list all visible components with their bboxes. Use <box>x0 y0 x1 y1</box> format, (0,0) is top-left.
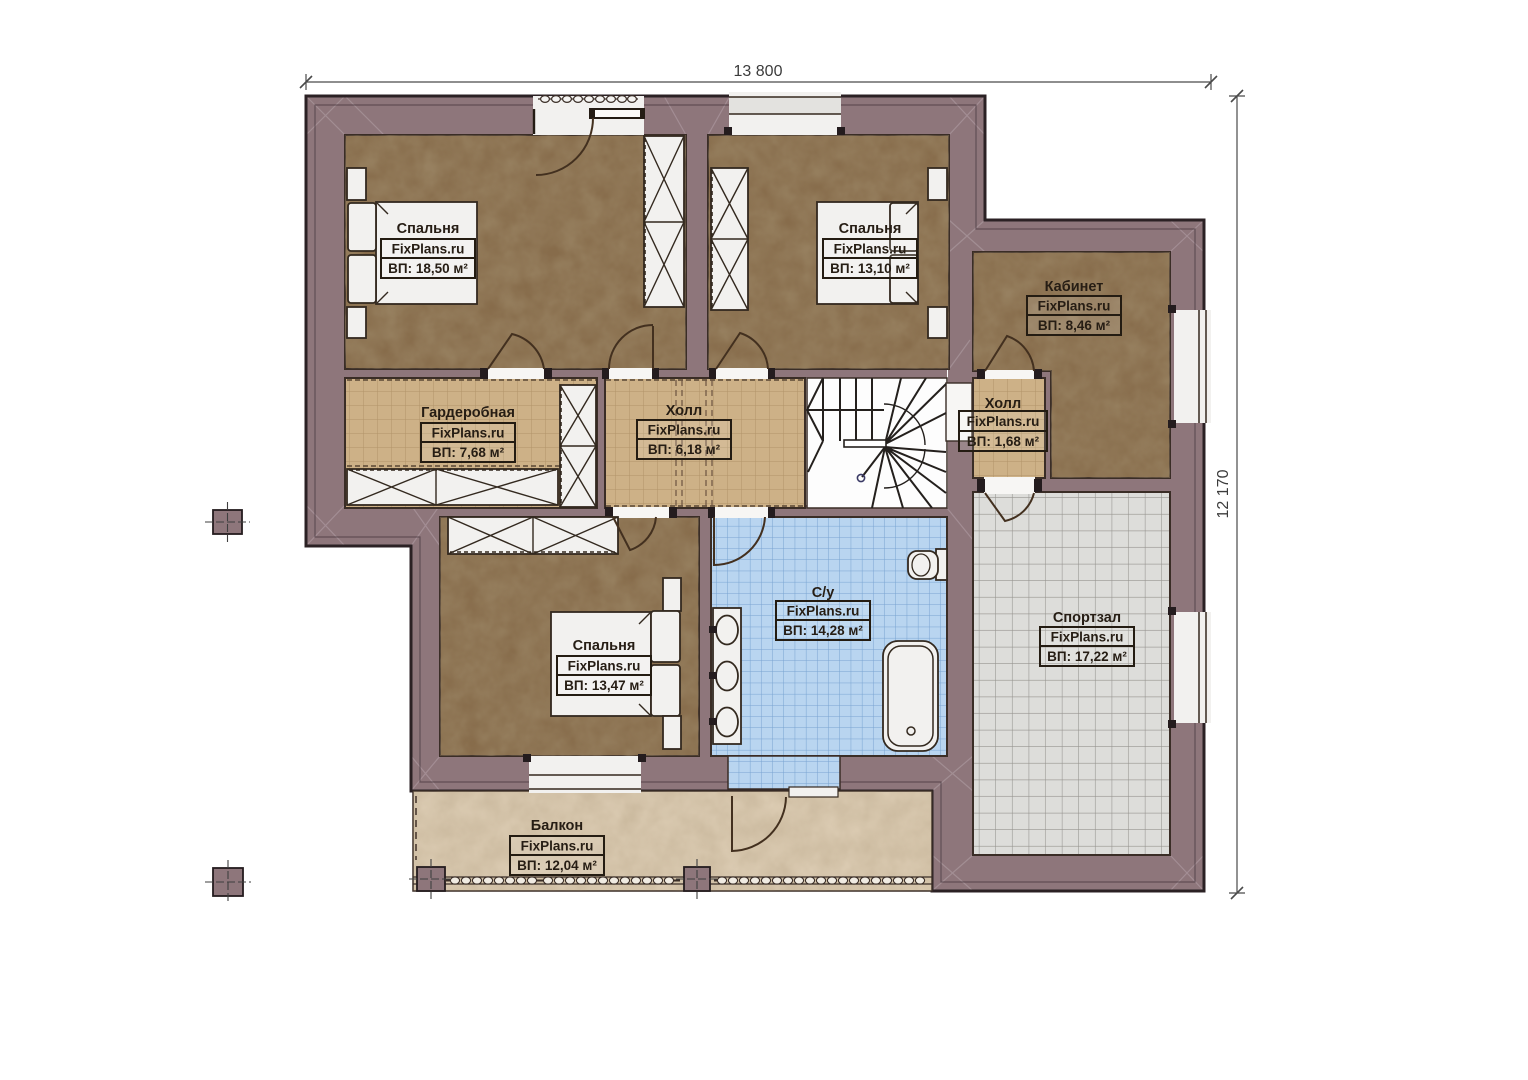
svg-text:13 800: 13 800 <box>734 63 783 80</box>
svg-text:FixPlans.ru: FixPlans.ru <box>648 423 721 438</box>
svg-text:FixPlans.ru: FixPlans.ru <box>521 839 594 854</box>
svg-text:FixPlans.ru: FixPlans.ru <box>834 242 907 257</box>
svg-text:FixPlans.ru: FixPlans.ru <box>1051 630 1124 645</box>
svg-text:ВП: 7,68 м²: ВП: 7,68 м² <box>432 445 505 460</box>
svg-text:FixPlans.ru: FixPlans.ru <box>568 659 641 674</box>
svg-text:Спальня: Спальня <box>839 221 902 237</box>
svg-text:ВП: 12,04 м²: ВП: 12,04 м² <box>517 858 597 873</box>
svg-text:ВП: 18,50 м²: ВП: 18,50 м² <box>388 261 468 276</box>
svg-text:ВП: 8,46 м²: ВП: 8,46 м² <box>1038 318 1111 333</box>
svg-text:FixPlans.ru: FixPlans.ru <box>392 242 465 257</box>
svg-text:С/у: С/у <box>812 585 835 601</box>
svg-text:FixPlans.ru: FixPlans.ru <box>967 414 1040 429</box>
svg-text:ВП: 6,18 м²: ВП: 6,18 м² <box>648 442 721 457</box>
svg-text:ВП: 13,10 м²: ВП: 13,10 м² <box>830 261 910 276</box>
svg-text:FixPlans.ru: FixPlans.ru <box>432 426 505 441</box>
svg-text:Холл: Холл <box>666 403 702 419</box>
svg-text:Спальня: Спальня <box>397 221 460 237</box>
svg-text:ВП: 1,68 м²: ВП: 1,68 м² <box>967 434 1040 449</box>
svg-text:FixPlans.ru: FixPlans.ru <box>787 604 860 619</box>
svg-text:Спальня: Спальня <box>573 638 636 654</box>
svg-text:Спортзал: Спортзал <box>1053 610 1121 626</box>
svg-text:FixPlans.ru: FixPlans.ru <box>1038 299 1111 314</box>
svg-text:ВП: 14,28 м²: ВП: 14,28 м² <box>783 623 863 638</box>
svg-text:ВП: 13,47 м²: ВП: 13,47 м² <box>564 678 644 693</box>
svg-text:12 170: 12 170 <box>1215 469 1232 518</box>
svg-text:ВП: 17,22 м²: ВП: 17,22 м² <box>1047 649 1127 664</box>
svg-text:Гардеробная: Гардеробная <box>421 405 515 421</box>
svg-text:Балкон: Балкон <box>531 818 583 834</box>
svg-text:Холл: Холл <box>985 396 1021 412</box>
svg-text:Кабинет: Кабинет <box>1045 279 1104 295</box>
